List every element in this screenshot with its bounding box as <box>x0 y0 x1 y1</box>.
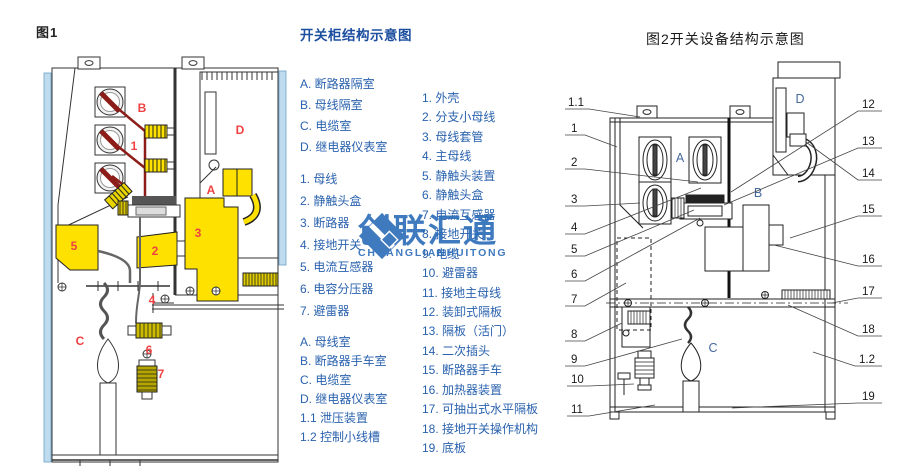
legend-item: 1. 母线 <box>300 168 373 190</box>
legend-item: 6. 电容分压器 <box>300 278 373 300</box>
legend-item: C. 电缆室 <box>300 371 387 390</box>
legend-item: C. 电缆室 <box>300 116 387 137</box>
legend1-parts-group: 1. 母线 2. 静触头盒 3. 断路器 4. 接地开关 5. 电流互感器 6.… <box>300 168 373 322</box>
fig2-callout: 18 <box>862 324 875 336</box>
legend-item: 11. 接地主母线 <box>422 284 538 303</box>
legend-item: 8. 接地开关 <box>422 225 538 244</box>
legend-item: 10. 避雷器 <box>422 264 538 283</box>
legend-item: 7. 避雷器 <box>300 300 373 322</box>
legend-item: 1. 外壳 <box>422 89 538 108</box>
fig2-callout: 17 <box>862 286 875 298</box>
legend-item: 4. 主母线 <box>422 147 538 166</box>
fig1-label: A <box>207 183 216 197</box>
fig1-label: C <box>76 334 85 348</box>
legend-item: 3. 断路器 <box>300 212 373 234</box>
legend1-rooms-group: A. 断路器隔室 B. 母线隔室 C. 电缆室 D. 继电器仪表室 <box>300 74 387 158</box>
figure1-diagram: B 1 D A 3 5 2 4 C 6 7 <box>40 55 290 470</box>
fig2-callout: 16 <box>862 254 875 266</box>
legend-item: 14. 二次插头 <box>422 342 538 361</box>
legend1-rooms2-group: A. 母线室 B. 断路器手车室 C. 电缆室 D. 继电器仪表室 1.1 泄压… <box>300 333 387 447</box>
legend-item: 2. 静触头盒 <box>300 190 373 212</box>
legend-item: B. 母线隔室 <box>300 95 387 116</box>
fig2-letter: A <box>676 151 685 165</box>
fig1-label: 6 <box>146 343 153 357</box>
legend-item: 12. 装卸式隔板 <box>422 303 538 322</box>
fig2-letter: C <box>708 341 717 355</box>
fig2-callout: 14 <box>862 168 875 180</box>
fig1-label: 1 <box>131 139 138 153</box>
fig2-callout: 9 <box>571 354 577 366</box>
fig2-callout: 7 <box>571 294 577 306</box>
fig1-label: 4 <box>149 293 156 307</box>
figure1-caption: 图1 <box>36 22 58 41</box>
legend-item: 17. 可抽出式水平隔板 <box>422 400 538 419</box>
legend-item: 1.1 泄压装置 <box>300 409 387 428</box>
legend-item: D. 继电器仪表室 <box>300 390 387 409</box>
fig1-label: D <box>236 123 245 137</box>
legend-item: 1.2 控制小线槽 <box>300 428 387 447</box>
legend-item: 5. 静触头装置 <box>422 167 538 186</box>
fig2-callout: 1 <box>571 123 577 135</box>
legend-item: D. 继电器仪表室 <box>300 137 387 158</box>
fig2-callout: 2 <box>571 157 577 169</box>
legend-item: 2. 分支小母线 <box>422 108 538 127</box>
fig2-callout: 15 <box>862 204 875 216</box>
fig1-label: 5 <box>71 239 78 253</box>
legend-item: A. 母线室 <box>300 333 387 352</box>
fig2-letter: B <box>754 186 762 200</box>
legend1-title: 开关柜结构示意图 <box>300 24 412 44</box>
legend-item: 16. 加热器装置 <box>422 381 538 400</box>
fig2-callout: 1.2 <box>859 354 875 366</box>
legend-item: B. 断路器手车室 <box>300 352 387 371</box>
figure2-title: 图2开关设备结构示意图 <box>646 29 805 49</box>
fig2-callout: 12 <box>862 99 875 111</box>
page: 图1 开关柜结构示意图 图2开关设备结构示意图 <box>0 0 900 474</box>
legend-item: 6. 静触头盒 <box>422 186 538 205</box>
fig2-callout: 11 <box>571 404 583 416</box>
legend-item: 3. 母线套管 <box>422 128 538 147</box>
fig2-callout: 4 <box>571 222 578 234</box>
legend-item: 4. 接地开关 <box>300 234 373 256</box>
fig1-label: 3 <box>195 226 202 240</box>
fig1-label: 7 <box>158 367 165 381</box>
legend-item: 13. 隔板（活门） <box>422 322 538 341</box>
fig2-callout: 10 <box>571 374 584 386</box>
legend-item: 9. 电缆 <box>422 245 538 264</box>
fig2-callout: 1.1 <box>568 97 584 109</box>
fig1-label: 2 <box>152 244 159 258</box>
legend-item: 15. 断路器手车 <box>422 361 538 380</box>
legend-item: 19. 底板 <box>422 439 538 458</box>
fig2-callout: 8 <box>571 329 577 341</box>
legend-item: 7. 电流互感器 <box>422 206 538 225</box>
fig2-callout: 6 <box>571 269 577 281</box>
fig2-callout: 5 <box>571 244 577 256</box>
legend-item: 18. 接地开关操作机构 <box>422 420 538 439</box>
figure2-diagram: A B C D 1 <box>560 55 900 470</box>
fig2-callout: 13 <box>862 136 875 148</box>
fig2-callout: 19 <box>862 391 875 403</box>
fig2-callout: 3 <box>571 194 577 206</box>
legend2-list: 1. 外壳 2. 分支小母线 3. 母线套管 4. 主母线 5. 静触头装置 6… <box>422 89 538 459</box>
legend-item: 5. 电流互感器 <box>300 256 373 278</box>
legend-item: A. 断路器隔室 <box>300 74 387 95</box>
fig2-letter: D <box>795 92 804 106</box>
fig1-label: B <box>138 101 147 115</box>
